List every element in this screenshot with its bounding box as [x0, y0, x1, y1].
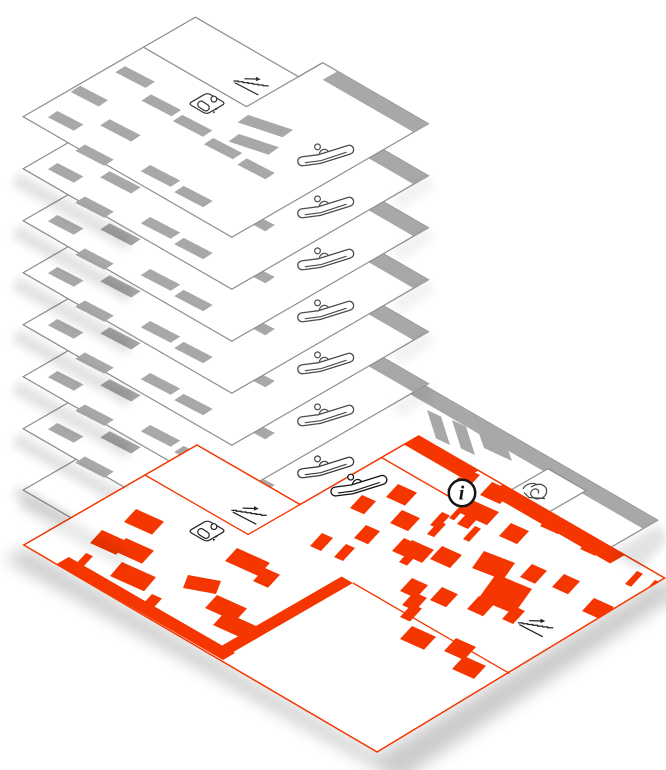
svg-text:i: i	[459, 483, 465, 505]
